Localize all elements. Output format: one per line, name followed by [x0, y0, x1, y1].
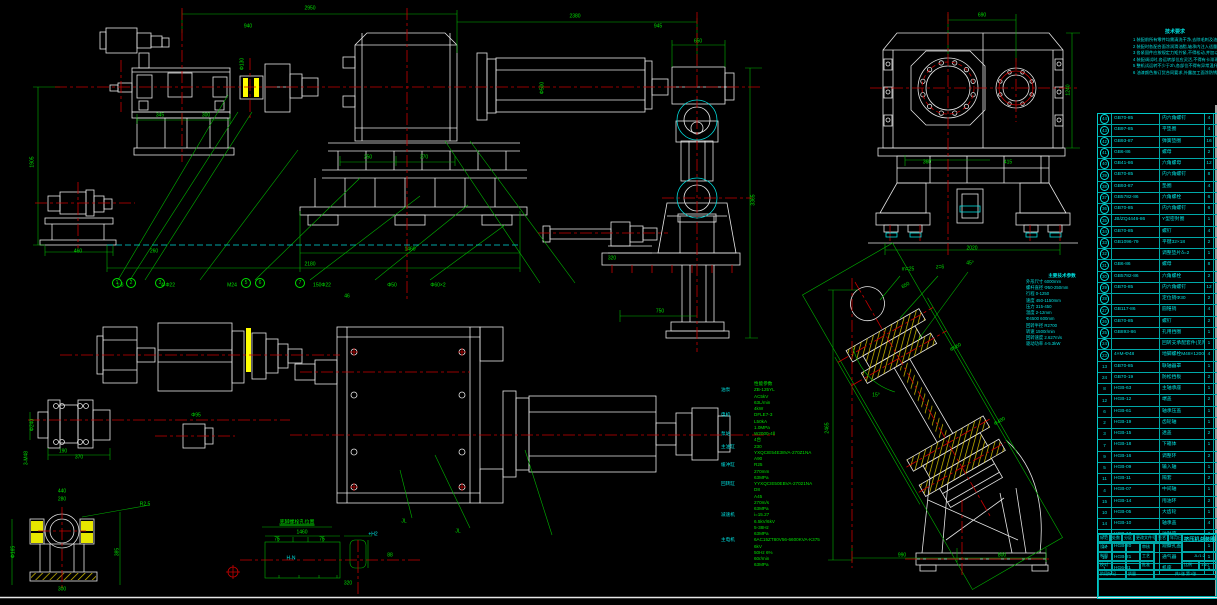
part-name-cell: 螺钉 [1160, 227, 1205, 237]
part-name-cell: 螺钉 [1160, 317, 1205, 327]
part-code-cell: HGB-19 [1112, 418, 1160, 428]
parts-table-row[interactable]: 3 HGB-15 透盖 2 [1098, 429, 1217, 440]
notes-lines: 1 装配前所有零件均需清洗干净,去除毛刺及油污后方可装配2 装配时各配合面涂润滑… [1133, 37, 1217, 76]
part-qty-cell: 2 [1205, 373, 1214, 383]
part-code-cell: HGB-05 [1112, 508, 1160, 518]
part-code-cell: 4×M-Φ48 [1112, 350, 1160, 360]
part-number-cell: 34 [1098, 227, 1112, 237]
parts-table-row[interactable]: 32 调整垫片δ=2 1 [1098, 249, 1217, 260]
part-name-cell: 六角螺栓 [1160, 193, 1205, 203]
part-code-cell: GB70-85 [1112, 362, 1160, 372]
part-qty-cell: 4 [1205, 182, 1214, 192]
part-name-cell: 内六角螺钉 [1160, 170, 1205, 180]
part-number-cell: 11 [1098, 474, 1112, 484]
spec-value: 6AC15ZT80V56-6600KVA-K375 [754, 537, 820, 542]
parts-table-row[interactable]: 12 HGB-12 端盖 2 [1098, 395, 1217, 406]
spec-value: D8 [754, 487, 760, 492]
part-code-cell: GB117-86 [1112, 305, 1160, 315]
spec-value: 1.0MPa [754, 425, 770, 430]
parts-table-row[interactable]: 29 GB70-85 内六角螺钉 12 [1098, 283, 1217, 294]
side-elevation-view [40, 28, 668, 245]
part-code-cell: GB93-87 [1112, 137, 1160, 147]
part-name-cell: 六角螺母 [1160, 159, 1205, 169]
tb-sign-cell[interactable] [1112, 561, 1126, 570]
parts-table-row[interactable]: 24 GB70-19 防松挡板 2 [1098, 373, 1217, 384]
spec-value: 63MPa [754, 475, 769, 480]
part-name-cell: 六角螺栓 [1160, 272, 1205, 282]
parts-table-row[interactable]: 28 定位销Φ30 2 [1098, 294, 1217, 305]
part-qty-cell: 4 [1205, 350, 1214, 360]
tb-sheet-info: 共1张 第1张 [1154, 570, 1217, 579]
part-code-cell: GB97-85 [1112, 125, 1160, 135]
note-line: 6 油漆颜色按订货合同要求,外露加工面涂防锈油 [1133, 70, 1217, 77]
part-number-cell: 10 [1098, 508, 1112, 518]
part-qty-cell: 8 [1205, 260, 1214, 270]
part-qty-cell: 4 [1205, 114, 1214, 124]
part-name-cell: 孔用挡圈 [1160, 328, 1205, 338]
parts-table-row[interactable]: 25 GB893-86 孔用挡圈 1 [1098, 328, 1217, 339]
parts-table-row[interactable]: 27 GB117-86 圆锥销 4 [1098, 305, 1217, 316]
parts-table-row[interactable]: 30 GB5782-86 六角螺栓 2 [1098, 272, 1217, 283]
part-qty-cell: 1 [1205, 440, 1214, 450]
part-qty-cell: 12 [1205, 283, 1214, 293]
part-name-cell: 平键32×18 [1160, 238, 1205, 248]
part-number-cell: 37 [1098, 193, 1112, 203]
part-name-cell: 透盖 [1160, 429, 1205, 439]
spec-value: 6kV [754, 544, 762, 549]
part-number-cell: 7 [1098, 440, 1112, 450]
part-qty-cell: 1 [1205, 485, 1214, 495]
tb-h3: 更改文件号 [1134, 534, 1156, 543]
part-qty-cell: 1 [1205, 362, 1214, 372]
tb-sign-cell[interactable] [1112, 543, 1126, 552]
tb-h0: 标记 [1098, 534, 1110, 543]
parts-table-row[interactable]: 9 HGB-16 调整环 2 [1098, 452, 1217, 463]
part-number-cell: 2 [1098, 418, 1112, 428]
part-code-cell: HGB-14 [1112, 497, 1160, 507]
part-number-cell: 41 [1098, 148, 1112, 158]
spec-value: 5-38Hz [754, 525, 769, 530]
part-name-cell: 联轴器罩 [1160, 362, 1205, 372]
parts-table-row[interactable]: 43 GB97-85 平垫圈 4 [1098, 125, 1217, 136]
spec-value: 63L/min [754, 400, 770, 405]
parts-table-row[interactable]: 40 GB41-86 六角螺母 12 [1098, 159, 1217, 170]
part-code-cell: GB70-85 [1112, 317, 1160, 327]
part-name-cell: 圆锥销 [1160, 305, 1205, 315]
tb-staff-approve: 批准 [1140, 561, 1154, 570]
centerlines [28, 8, 1078, 597]
tb-h4: 签名 [1156, 534, 1168, 543]
spec-value: 4kW [754, 406, 763, 411]
parts-table-row[interactable]: 35 JB/ZQ4446-86 Y型密封圈 1 [1098, 215, 1217, 226]
part-name-cell: 中间轴 [1160, 485, 1205, 495]
part-number-cell: 15 [1098, 497, 1112, 507]
part-code-cell: GB70-85 [1112, 114, 1160, 124]
part-name-cell: 隔套 [1160, 474, 1205, 484]
parts-table-row[interactable]: 42 GB93-87 弹簧垫圈 16 [1098, 137, 1217, 148]
part-number-cell: 24 [1098, 373, 1112, 383]
part-code-cell: GB70-19 [1112, 373, 1160, 383]
part-code-cell: GB70-85 [1112, 170, 1160, 180]
part-qty-cell: 1 [1205, 339, 1214, 349]
part-name-cell: 垫圈 [1160, 182, 1205, 192]
part-code-cell: GB1096-79 [1112, 238, 1160, 248]
part-code-cell: GB70-85 [1112, 204, 1160, 214]
part-number-cell: 42 [1098, 137, 1112, 147]
tb-scale-label: 比例 [1182, 561, 1199, 570]
spec-value: YYXQCIE50EBVA-27021NA [754, 481, 812, 486]
part-qty-cell: 2 [1205, 317, 1214, 327]
part-name-cell: 内六角螺钉 [1160, 283, 1205, 293]
parts-table-row[interactable]: 14 HGB-10 轴承盖 4 [1098, 519, 1217, 530]
parts-table-row[interactable]: 6 HGB-61 轴承压盖 1 [1098, 407, 1217, 418]
tb-blank-area[interactable] [1098, 579, 1217, 597]
part-number-cell: 23 [1098, 350, 1112, 360]
part-name-cell: 轴承压盖 [1160, 407, 1205, 417]
tb-h1: 处数 [1110, 534, 1122, 543]
end-view [868, 33, 1078, 243]
parts-table-row[interactable]: 33 GB1096-79 平键32×18 2 [1098, 238, 1217, 249]
parts-table-row[interactable]: 44 GB70-85 内六角螺钉 4 [1098, 114, 1217, 125]
tb-mass-label: 质量 [1126, 570, 1154, 579]
part-name-cell: 回转支承配套件(见附表) [1160, 339, 1205, 349]
part-code-cell: HGB-09 [1112, 463, 1160, 473]
part-qty-cell: 1 [1205, 328, 1214, 338]
part-code-cell: HGB-10 [1112, 519, 1160, 529]
part-qty-cell: 2 [1205, 148, 1214, 158]
part-code-cell: HGB-18 [1112, 440, 1160, 450]
tb-drawing-code: JL/1:2 [1182, 552, 1217, 561]
part-number-cell: 29 [1098, 283, 1112, 293]
part-qty-cell: 6 [1205, 193, 1214, 203]
spec-value: 4台 [754, 437, 761, 442]
incline-parameter-block: 主要技术参数 外形尺寸 6000mm螺杆直径 Φ50-250mm行程 0-125… [1026, 273, 1098, 347]
sheet-frame [0, 105, 1217, 598]
incline-spec-line: 驱动功率 4-5.3kW [1026, 341, 1098, 347]
parts-table-row[interactable]: 38 GB93-87 垫圈 4 [1098, 182, 1217, 193]
part-code-cell: JB/ZQ4446-86 [1112, 215, 1160, 225]
parts-table-row[interactable]: 7 HGB-18 下箱体 1 [1098, 440, 1217, 451]
part-qty-cell: 2 [1205, 474, 1214, 484]
part-qty-cell: 12 [1205, 159, 1214, 169]
part-number-cell: 40 [1098, 159, 1112, 169]
part-code-cell: HGB-16 [1112, 452, 1160, 462]
part-code-cell: GB5782-86 [1112, 193, 1160, 203]
part-qty-cell: 2 [1205, 238, 1214, 248]
performance-spec-block: 性能参数 油泵ZB-125YL AC5kV 63L/min 4kW 电机DFLE… [721, 381, 871, 569]
part-code-cell: GB5782-86 [1112, 272, 1160, 282]
spec-value: ZB-125YL [754, 387, 775, 392]
part-name-cell: 甩油环 [1160, 497, 1205, 507]
part-qty-cell: 1 [1205, 407, 1214, 417]
spec-value: R25 [754, 462, 762, 467]
spec-value: A90 [754, 456, 762, 461]
part-number-cell: 4 [1098, 485, 1112, 495]
part-qty-cell: 2 [1205, 429, 1214, 439]
part-code-cell: GB893-86 [1112, 328, 1160, 338]
part-number-cell: 28 [1098, 294, 1112, 304]
part-qty-cell: 2 [1205, 272, 1214, 282]
spec-value: 50Hz 6% [754, 550, 773, 555]
tb-staff-design: 设计 [1098, 543, 1112, 552]
part-number-cell: 9 [1098, 452, 1112, 462]
spec-value: 60r/min [754, 556, 769, 561]
spec-value: 性能参数 [754, 381, 772, 386]
spec-value: A45 [754, 494, 762, 499]
parts-table-row[interactable]: 41 GB6-86 螺母 2 [1098, 148, 1217, 159]
title-block: 标记 处数 分区 更改文件号 签名 年月日 设计 制图 校对 审核 工艺 批准 … [1097, 533, 1217, 599]
technical-notes: 技术要求 1 装配前所有零件均需清洗干净,去除毛刺及油污后方可装配2 装配时各配… [1133, 28, 1217, 76]
tb-staff-check: 校对 [1098, 561, 1112, 570]
part-number-cell: 24 [1098, 339, 1112, 349]
parts-table-row[interactable]: 4 HGB-07 中间轴 1 [1098, 485, 1217, 496]
tb-drawing-title: 挤压机总装图 [1182, 534, 1217, 552]
part-number-cell: 26 [1098, 317, 1112, 327]
part-name-cell: 螺母 [1160, 148, 1205, 158]
spec-value: 230 [754, 444, 762, 449]
part-name-cell: 螺母 [1160, 260, 1205, 270]
tb-date-cell[interactable] [1126, 543, 1140, 552]
parts-table-row[interactable]: 36 GB70-85 内六角螺钉 6 [1098, 204, 1217, 215]
part-number-cell: 6 [1098, 407, 1112, 417]
part-number-cell: 44 [1098, 114, 1112, 124]
part-name-cell: 调整垫片δ=2 [1160, 249, 1205, 259]
part-name-cell: 轴承盖 [1160, 519, 1205, 529]
tb-staff-audit: 审核 [1140, 543, 1154, 552]
part-name-cell: 弹簧垫圈 [1160, 137, 1205, 147]
part-code-cell: HGB-07 [1112, 485, 1160, 495]
part-qty-cell: 1 [1205, 418, 1214, 428]
part-number-cell: 14 [1098, 519, 1112, 529]
tb-sign-cell[interactable] [1112, 552, 1126, 561]
parts-table-row[interactable]: 10 HGB-05 大齿轮 1 [1098, 508, 1217, 519]
spec-value: 6.5kV/6kV [754, 519, 775, 524]
part-name-cell: 下箱体 [1160, 440, 1205, 450]
part-qty-cell: 1 [1205, 508, 1214, 518]
part-number-cell: 8 [1098, 384, 1112, 394]
part-qty-cell: 1 [1205, 463, 1214, 473]
part-qty-cell: 2 [1205, 294, 1214, 304]
part-number-cell: 39 [1098, 170, 1112, 180]
part-name-cell: 调整环 [1160, 452, 1205, 462]
parts-table-row[interactable]: 39 GB70-85 内六角螺钉 8 [1098, 170, 1217, 181]
part-code-cell: HGB-15 [1112, 429, 1160, 439]
part-code-cell: GB93-87 [1112, 182, 1160, 192]
part-number-cell: 27 [1098, 305, 1112, 315]
note-line: 5 整机试运转不少于2h,各部位不得有异常温升及渗漏 [1133, 63, 1217, 70]
part-code-cell: HGB-12 [1112, 395, 1160, 405]
part-name-cell: Y型密封圈 [1160, 215, 1205, 225]
spec-value: L50kA [754, 419, 767, 424]
spec-value: 270mm [754, 469, 769, 474]
part-name-cell: 内六角螺钉 [1160, 204, 1205, 214]
tb-scale-value: 1:10 [1199, 561, 1217, 570]
part-number-cell: 38 [1098, 182, 1112, 192]
part-number-cell: 13 [1098, 362, 1112, 372]
part-code-cell: HGB-63 [1112, 384, 1160, 394]
spec-value: W2000-4Ⅱ [754, 431, 775, 436]
part-number-cell: 43 [1098, 125, 1112, 135]
note-line: 3 各紧固件应按规定力矩拧紧,不得松动,并加以防松处理 [1133, 50, 1217, 57]
parts-table-row[interactable]: 13 GB70-85 联轴器罩 1 [1098, 362, 1217, 373]
part-name-cell: 端盖 [1160, 395, 1205, 405]
spec-value: YXQCIE54E38VA-270Z1NA [754, 450, 811, 455]
part-name-cell: 定位销Φ30 [1160, 294, 1205, 304]
part-number-cell: 30 [1098, 272, 1112, 282]
part-qty-cell: 8 [1205, 170, 1214, 180]
spec-value: 63MPa [754, 506, 769, 511]
part-number-cell: 12 [1098, 395, 1112, 405]
cad-drawing-canvas: 技术要求 1 装配前所有零件均需清洗干净,去除毛刺及油污后方可装配2 装配时各配… [0, 0, 1217, 605]
part-qty-cell: 1 [1205, 384, 1214, 394]
parts-table-row[interactable]: 11 HGB-11 隔套 2 [1098, 474, 1217, 485]
part-qty-cell: 4 [1205, 305, 1214, 315]
tb-h5: 年月日 [1168, 534, 1182, 543]
part-name-cell: 大齿轮 [1160, 508, 1205, 518]
part-name-cell: 防松挡板 [1160, 373, 1205, 383]
part-code-cell: GB6-86 [1112, 260, 1160, 270]
tb-staff-draw: 制图 [1098, 552, 1112, 561]
part-qty-cell: 2 [1205, 395, 1214, 405]
parts-table-row[interactable]: 26 GB70-85 螺钉 2 [1098, 317, 1217, 328]
part-name-cell: 齿轮轴 [1160, 418, 1205, 428]
tb-signature-area[interactable] [1154, 543, 1182, 570]
part-code-cell: GB70-85 [1112, 227, 1160, 237]
swing-assembly-view [543, 67, 740, 338]
parts-table-row[interactable]: 31 GB6-86 螺母 8 [1098, 260, 1217, 271]
spec-value: 270m/s [754, 500, 769, 505]
tb-date-cell[interactable] [1126, 561, 1140, 570]
parts-table-row[interactable]: 5 HGB-09 输入轴 1 [1098, 463, 1217, 474]
spec-value: i=15.27 [754, 512, 769, 517]
part-qty-cell: 1 [1205, 215, 1214, 225]
part-name-cell: 内六角螺钉 [1160, 114, 1205, 124]
part-qty-cell: 1 [1205, 249, 1214, 259]
part-number-cell: 35 [1098, 215, 1112, 225]
tb-staff-process: 工艺 [1140, 552, 1154, 561]
part-qty-cell: 2 [1205, 497, 1214, 507]
part-qty-cell: 6 [1205, 204, 1214, 214]
tb-h2: 分区 [1122, 534, 1134, 543]
spec-value: 63MPa [754, 562, 769, 567]
part-code-cell [1112, 339, 1160, 349]
cyan-graphics [107, 100, 1061, 245]
part-qty-cell: 4 [1205, 227, 1214, 237]
part-code-cell: HGB-11 [1112, 474, 1160, 484]
part-qty-cell: 4 [1205, 519, 1214, 529]
part-qty-cell: 2 [1205, 452, 1214, 462]
tb-date-cell[interactable] [1126, 552, 1140, 561]
spec-value: AC5kV [754, 394, 768, 399]
part-number-cell: 32 [1098, 249, 1112, 259]
part-name-cell: 地脚螺栓M48×1200(见基础图) [1160, 350, 1205, 360]
parts-table-row[interactable]: 8 HGB-63 主轴承座 1 [1098, 384, 1217, 395]
part-code-cell [1112, 294, 1160, 304]
part-number-cell: 3 [1098, 429, 1112, 439]
part-qty-cell: 16 [1205, 137, 1214, 147]
part-name-cell: 主轴承座 [1160, 384, 1205, 394]
part-qty-cell: 4 [1205, 125, 1214, 135]
part-name-cell: 输入轴 [1160, 463, 1205, 473]
part-code-cell: GB6-86 [1112, 148, 1160, 158]
parts-table-row[interactable]: 15 HGB-14 甩油环 2 [1098, 497, 1217, 508]
part-number-cell: 25 [1098, 328, 1112, 338]
part-name-cell: 平垫圈 [1160, 125, 1205, 135]
part-code-cell: HGB-61 [1112, 407, 1160, 417]
part-code-cell: GB70-85 [1112, 283, 1160, 293]
note-line: 1 装配前所有零件均需清洗干净,去除毛刺及油污后方可装配 [1133, 37, 1217, 44]
notes-title: 技术要求 [1133, 28, 1217, 35]
parts-table-row[interactable]: 24 回转支承配套件(见附表) 1 [1098, 339, 1217, 350]
parts-list-table: 44 GB70-85 内六角螺钉 4 43 GB97-85 平垫圈 4 42 G… [1097, 113, 1217, 575]
parts-table-row[interactable]: 23 4×M-Φ48 地脚螺栓M48×1200(见基础图) 4 [1098, 350, 1217, 361]
part-number-cell: 5 [1098, 463, 1112, 473]
part-number-cell: 33 [1098, 238, 1112, 248]
tb-stage-label: 阶段标记 [1098, 570, 1126, 579]
part-code-cell [1112, 249, 1160, 259]
part-number-cell: 31 [1098, 260, 1112, 270]
spec-row: 63MPa [721, 562, 871, 568]
spec-value: DFLE7-3 [754, 412, 772, 417]
parts-table-row[interactable]: 37 GB5782-86 六角螺栓 6 [1098, 193, 1217, 204]
spec-value: 63MPa [754, 531, 769, 536]
plan-view [38, 323, 730, 503]
part-number-cell: 36 [1098, 204, 1112, 214]
parts-table-row[interactable]: 34 GB70-85 螺钉 4 [1098, 227, 1217, 238]
parts-table-row[interactable]: 2 HGB-19 齿轮轴 1 [1098, 418, 1217, 429]
part-code-cell: GB41-86 [1112, 159, 1160, 169]
